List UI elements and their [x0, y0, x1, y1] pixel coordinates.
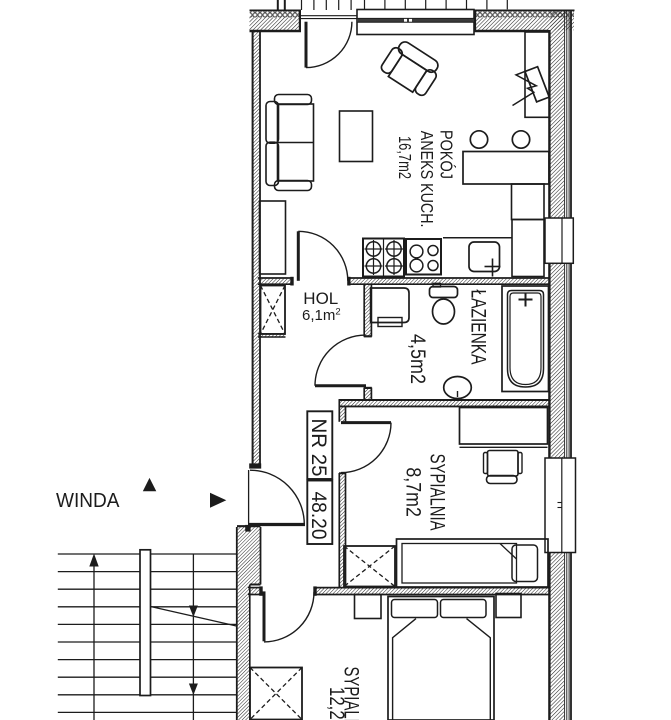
svg-text:WINDA: WINDA — [56, 489, 120, 512]
svg-text:8,7m2: 8,7m2 — [402, 467, 425, 517]
svg-text:POKÓJ: POKÓJ — [436, 130, 457, 179]
svg-text:48.20: 48.20 — [307, 492, 331, 540]
svg-text:SYPIALNIA: SYPIALNIA — [426, 454, 449, 531]
svg-text:ANEKS KUCH.: ANEKS KUCH. — [417, 131, 437, 228]
svg-text:ŁAZIENKA: ŁAZIENKA — [466, 290, 490, 365]
svg-text:HOL: HOL — [303, 289, 338, 308]
svg-text:NR 25: NR 25 — [307, 419, 331, 477]
svg-text:12,2m2: 12,2m2 — [325, 687, 348, 720]
svg-text:16,7m2: 16,7m2 — [395, 136, 415, 179]
svg-text:6,1m2: 6,1m2 — [302, 307, 341, 325]
svg-text:4,5m2: 4,5m2 — [406, 334, 430, 384]
